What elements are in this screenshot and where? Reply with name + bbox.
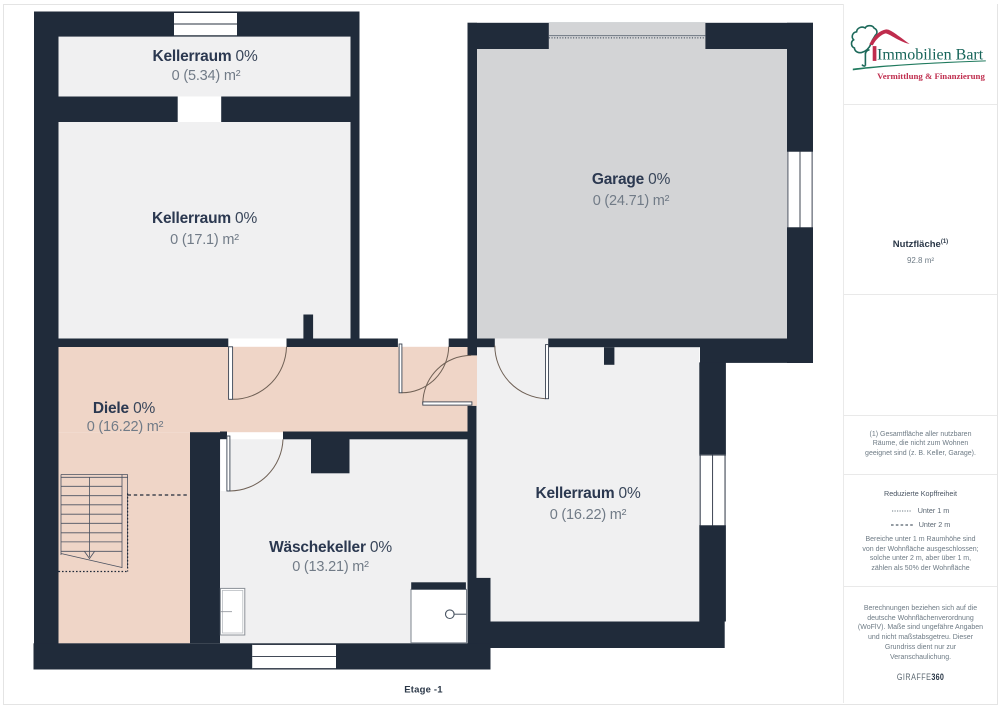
svg-text:Vermittlung & Finanzierung: Vermittlung & Finanzierung — [877, 71, 985, 81]
svg-text:Immobilien Bart: Immobilien Bart — [877, 46, 984, 63]
